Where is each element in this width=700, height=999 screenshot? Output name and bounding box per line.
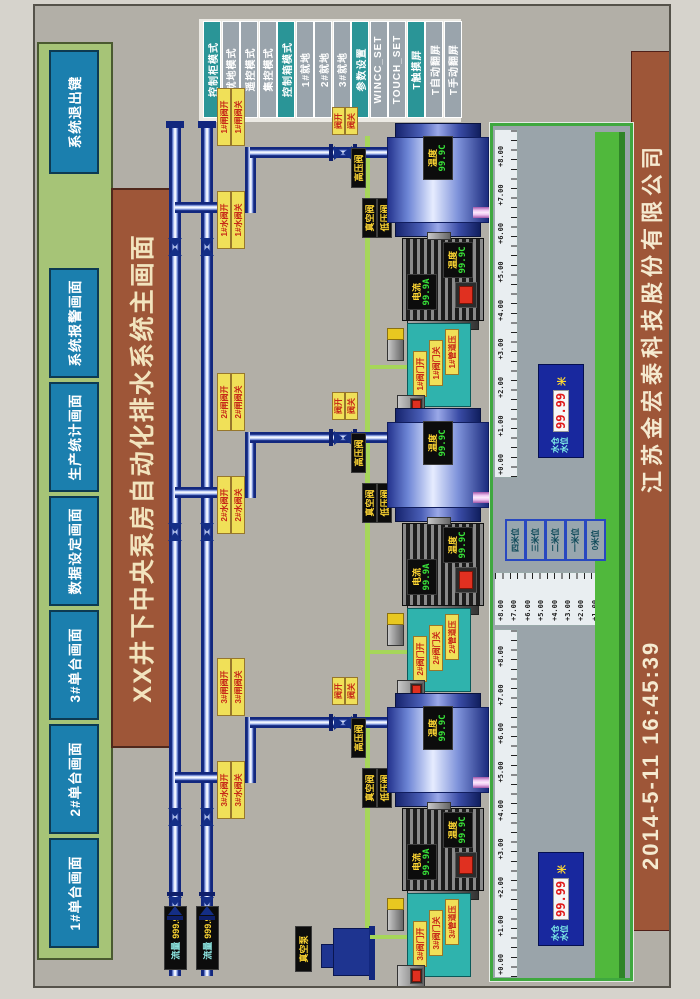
scale-label: +4.00 <box>497 300 505 321</box>
actuator-indicator <box>410 968 423 984</box>
pump-temp-label: 温度99.9C <box>423 706 453 750</box>
gate-open-tag: 3#闸阀开 <box>217 658 231 716</box>
panel-tag[interactable]: 1#管道压 <box>445 329 459 375</box>
vac-valve-label: 真空阀 <box>362 198 377 238</box>
motor-current-label: 电流99.9A <box>407 559 437 595</box>
gate-open-tag: 2#闸阀开 <box>217 373 231 431</box>
nav-button-4[interactable]: 数据设定画面 <box>49 496 99 606</box>
vac_valve-text: 真空阀 <box>363 775 376 802</box>
valve-icon <box>334 146 352 160</box>
scale-label: +6.00 <box>497 223 505 244</box>
panel-tag[interactable]: 2#阀门关 <box>429 625 443 671</box>
mode-button-10[interactable]: WINCC_SET <box>370 21 388 118</box>
panel-tag[interactable]: 2#阀门开 <box>413 636 427 682</box>
temp-value: 99.9C <box>438 714 448 741</box>
shaft-coupling <box>427 517 451 525</box>
hp-valve-label: 高压阀 <box>351 433 366 473</box>
nav-button-2[interactable]: 2#单台画面 <box>49 724 99 834</box>
discharge-riser <box>250 147 390 158</box>
level-unit: 米 <box>555 377 568 386</box>
level-unit: 米 <box>555 865 568 874</box>
hp-valve-text: 高压阀 <box>352 440 365 467</box>
scale-label: +0.00 <box>497 954 505 975</box>
red-indicator <box>459 571 474 590</box>
temp-label: 温度 <box>428 719 438 737</box>
shaft-coupling <box>427 232 451 240</box>
motor-current-label: 电流99.9A <box>407 844 437 880</box>
pipe-end-cap <box>198 121 216 128</box>
hp-valve-text: 高压阀 <box>352 725 365 752</box>
priming-device-cap <box>387 613 404 625</box>
valve-flange <box>329 714 333 731</box>
panel-tag[interactable]: 3#阀门开 <box>413 921 427 967</box>
mode-button-8[interactable]: 3#就地 <box>333 21 351 118</box>
rotated-hmi-photo: { "nav": { "buttons": ["1#单台画面", "2#单台画面… <box>0 0 700 999</box>
panel-tag[interactable]: 3#阀门关 <box>429 910 443 956</box>
level-value: 99.99 <box>553 390 569 432</box>
level-button-1[interactable]: 四米位 <box>505 519 526 561</box>
valve-open-tag: 阀开 <box>332 677 345 705</box>
valve-icon <box>168 238 182 256</box>
vacuum-pump-label-text: 真空泵 <box>297 936 310 963</box>
vacuum-stub <box>370 935 407 939</box>
gate-close-tag: 2#闸阀关 <box>231 373 245 431</box>
valve-flange <box>199 892 215 896</box>
shaft-coupling <box>427 802 451 810</box>
scale-label: +3.00 <box>564 600 572 621</box>
water-open-tag: 2#水阀开 <box>217 476 231 534</box>
priming-device-cap <box>387 898 404 910</box>
caption-text: 水位 <box>561 437 570 453</box>
nav-button-5[interactable]: 生产统计画面 <box>49 382 99 492</box>
panel-tag[interactable]: 1#阀门开 <box>413 351 427 397</box>
water-open-tag: 3#水阀开 <box>217 761 231 819</box>
nav-button-3[interactable]: 3#单台画面 <box>49 610 99 720</box>
scale-label: +4.00 <box>497 800 505 821</box>
valve-icon <box>334 431 352 445</box>
flow-label: 流量 <box>169 942 182 960</box>
water-open-tag: 1#水阀开 <box>217 191 231 249</box>
scale-label: +5.00 <box>497 261 505 282</box>
pump-temp-label: 温度99.9C <box>423 421 453 465</box>
scale-label: +1.00 <box>497 415 505 436</box>
vacuum-stub <box>370 650 407 654</box>
mode-button-4[interactable]: 集控模式 <box>259 21 277 118</box>
scale-ticks <box>511 130 517 477</box>
valve-icon <box>200 897 214 915</box>
system-exit-button[interactable]: 系统退出键 <box>49 50 99 174</box>
mode-button-13[interactable]: T自动翻屏 <box>425 21 443 118</box>
current-label: 电流 <box>412 283 422 301</box>
red-indicator <box>459 286 474 305</box>
temp-value: 99.9C <box>438 429 448 456</box>
valve-flange <box>167 916 183 920</box>
valve-icon <box>168 808 182 826</box>
scale-label: +4.00 <box>551 600 559 621</box>
level-button-5[interactable]: 0米位 <box>585 519 606 561</box>
valve-flange <box>199 916 215 920</box>
sump-scale-right: +0.00+1.00+2.00+3.00+4.00+5.00+6.00+7.00… <box>494 129 518 478</box>
valve-icon <box>200 238 214 256</box>
scale-label: +6.00 <box>497 723 505 744</box>
panel-tag[interactable]: 2#管道压 <box>445 614 459 660</box>
scale-label: +6.00 <box>524 600 532 621</box>
red-indicator <box>459 856 474 875</box>
valve-flange <box>167 892 183 896</box>
motor-temp-label: 温度99.9C <box>443 812 473 848</box>
valve-flange <box>329 429 333 446</box>
current-label: 电流 <box>412 853 422 871</box>
scale-ticks <box>511 630 517 977</box>
current-value: 99.9A <box>422 278 432 305</box>
temp-value: 99.9C <box>458 531 468 558</box>
scale-label: +1.00 <box>497 915 505 936</box>
company-name: 江苏金宏泰科技股份有限公司 <box>635 142 667 493</box>
motor-stop-button[interactable] <box>455 567 477 593</box>
sump-level-display-right: 水仓水位99.99米 <box>538 364 584 458</box>
vac_valve-text: 真空阀 <box>363 205 376 232</box>
sump-level-display-left: 水仓水位99.99米 <box>538 852 584 946</box>
priming-device-cap <box>387 328 404 340</box>
discharge-riser <box>250 717 390 728</box>
valve-icon <box>200 523 214 541</box>
motor-temp-label: 温度99.9C <box>443 527 473 563</box>
scale-label: +8.00 <box>497 646 505 667</box>
water-close-tag: 2#水阀关 <box>231 476 245 534</box>
scale-label: +2.00 <box>497 877 505 898</box>
page-title: XX井下中央泵房自动化排水系统主画面 <box>111 188 171 748</box>
temp-value: 99.9C <box>438 144 448 171</box>
vacuum-stub <box>370 365 407 369</box>
hmi-screen: XX井下中央泵房自动化排水系统主画面 2014-5-11 16:45:39 江苏… <box>33 4 671 988</box>
hp-valve-text: 高压阀 <box>352 155 365 182</box>
panel-tag[interactable]: 1#阀门关 <box>429 340 443 386</box>
motor-stop-button[interactable] <box>455 282 477 308</box>
level-button-2[interactable]: 三米位 <box>525 519 546 561</box>
scale-label: +8.00 <box>497 600 505 621</box>
valve-close-tag: 阀关 <box>345 107 358 135</box>
mode-button-7[interactable]: 2#就地 <box>314 21 332 118</box>
temp-value: 99.9C <box>458 246 468 273</box>
vacuum-line <box>365 136 370 956</box>
water-close-tag: 3#水阀关 <box>231 761 245 819</box>
page-title-text: XX井下中央泵房自动化排水系统主画面 <box>123 233 159 702</box>
vac-valve-label: 真空阀 <box>362 768 377 808</box>
valve-icon <box>168 523 182 541</box>
mode-button-5[interactable]: 控制箱模式 <box>277 21 295 118</box>
mode-button-9[interactable]: 参数设置 <box>351 21 369 118</box>
sump-scale-left: +0.00+1.00+2.00+3.00+4.00+5.00+6.00+7.00… <box>494 629 518 978</box>
valve-close-tag: 阀关 <box>345 677 358 705</box>
datetime: 2014-5-11 16:45:39 <box>638 641 664 870</box>
motor-current-label: 电流99.9A <box>407 274 437 310</box>
valve-icon <box>168 897 182 915</box>
hp-valve-label: 高压阀 <box>351 148 366 188</box>
valve-close-tag: 阀关 <box>345 392 358 420</box>
vacuum-pump-body <box>333 928 371 976</box>
pipe-end-cap <box>166 121 184 128</box>
mode-button-11[interactable]: TOUCH_SET <box>388 21 406 118</box>
hp-valve-label: 高压阀 <box>351 718 366 758</box>
level-value: 99.99 <box>553 878 569 920</box>
level-button-4[interactable]: 一米位 <box>565 519 586 561</box>
valve-open-tag: 阀开 <box>332 107 345 135</box>
footer-bar: 2014-5-11 16:45:39 江苏金宏泰科技股份有限公司 <box>631 51 670 931</box>
scale-label: +5.00 <box>537 600 545 621</box>
mode-button-6[interactable]: 1#就地 <box>296 21 314 118</box>
red-indicator <box>412 970 421 982</box>
discharge-riser <box>250 432 390 443</box>
mode-button-14[interactable]: T手动翻屏 <box>444 21 462 118</box>
scale-label: +7.00 <box>497 184 505 205</box>
scale-label: +7.00 <box>510 600 518 621</box>
vac-valve-label: 真空阀 <box>362 483 377 523</box>
mode-button-12[interactable]: T触摸屏 <box>407 21 425 118</box>
valve-icon <box>334 716 352 730</box>
scale-label: +0.00 <box>497 454 505 475</box>
temp-label: 温度 <box>448 251 458 269</box>
display-caption: 水仓水位 <box>552 437 570 453</box>
gate-close-tag: 1#闸阀关 <box>231 88 245 146</box>
scale-label: +3.00 <box>497 838 505 859</box>
pump-temp-label: 温度99.9C <box>423 136 453 180</box>
scale-label: +7.00 <box>497 684 505 705</box>
valve-flange <box>329 144 333 161</box>
water-close-tag: 1#水阀关 <box>231 191 245 249</box>
panel-tag[interactable]: 3#管道压 <box>445 899 459 945</box>
scale-label: +8.00 <box>497 146 505 167</box>
current-value: 99.9A <box>422 848 432 875</box>
level-button-3[interactable]: 二米位 <box>545 519 566 561</box>
temp-label: 温度 <box>428 149 438 167</box>
vac_valve-text: 真空阀 <box>363 490 376 517</box>
caption-text: 水位 <box>561 925 570 941</box>
scale-label: +2.00 <box>577 600 585 621</box>
temp-label: 温度 <box>448 536 458 554</box>
temp-value: 99.9C <box>458 816 468 843</box>
gate-open-tag: 1#闸阀开 <box>217 88 231 146</box>
current-value: 99.9A <box>422 563 432 590</box>
motor-temp-label: 温度99.9C <box>443 242 473 278</box>
scale-label: +2.00 <box>497 377 505 398</box>
motor-stop-button[interactable] <box>455 852 477 878</box>
scale-label: +3.00 <box>497 338 505 359</box>
scale-label: +5.00 <box>497 761 505 782</box>
valve-open-tag: 阀开 <box>332 392 345 420</box>
valve-icon <box>200 808 214 826</box>
sump-water-edge <box>619 132 625 978</box>
current-label: 电流 <box>412 568 422 586</box>
gate-close-tag: 3#闸阀关 <box>231 658 245 716</box>
temp-label: 温度 <box>428 434 438 452</box>
vacuum-pump-label: 真空泵 <box>295 926 312 972</box>
display-caption: 水仓水位 <box>552 925 570 941</box>
nav-button-6[interactable]: 系统报警画面 <box>49 268 99 378</box>
temp-label: 温度 <box>448 821 458 839</box>
nav-button-1[interactable]: 1#单台画面 <box>49 838 99 948</box>
flow-label: 流量 <box>201 942 214 960</box>
